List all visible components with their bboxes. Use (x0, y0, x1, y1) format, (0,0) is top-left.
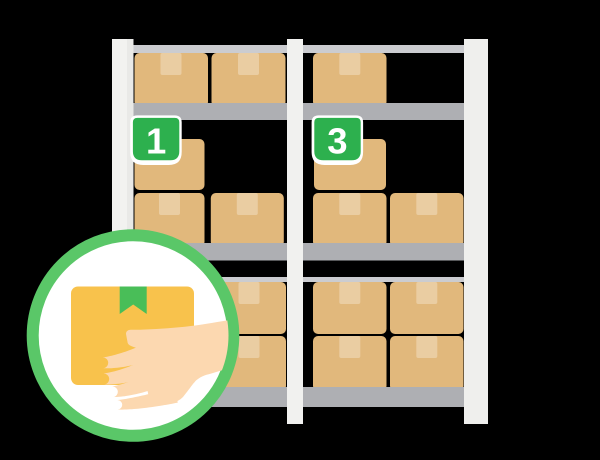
svg-text:3: 3 (327, 121, 347, 162)
svg-text:1: 1 (146, 121, 166, 162)
